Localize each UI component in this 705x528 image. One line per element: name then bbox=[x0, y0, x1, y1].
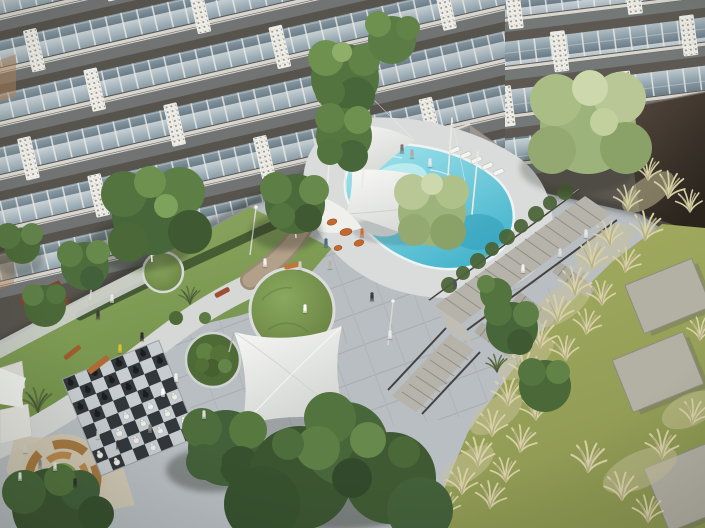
vignette bbox=[0, 0, 705, 528]
rendering-canvas bbox=[0, 0, 705, 528]
courtyard-rendering bbox=[0, 0, 705, 528]
